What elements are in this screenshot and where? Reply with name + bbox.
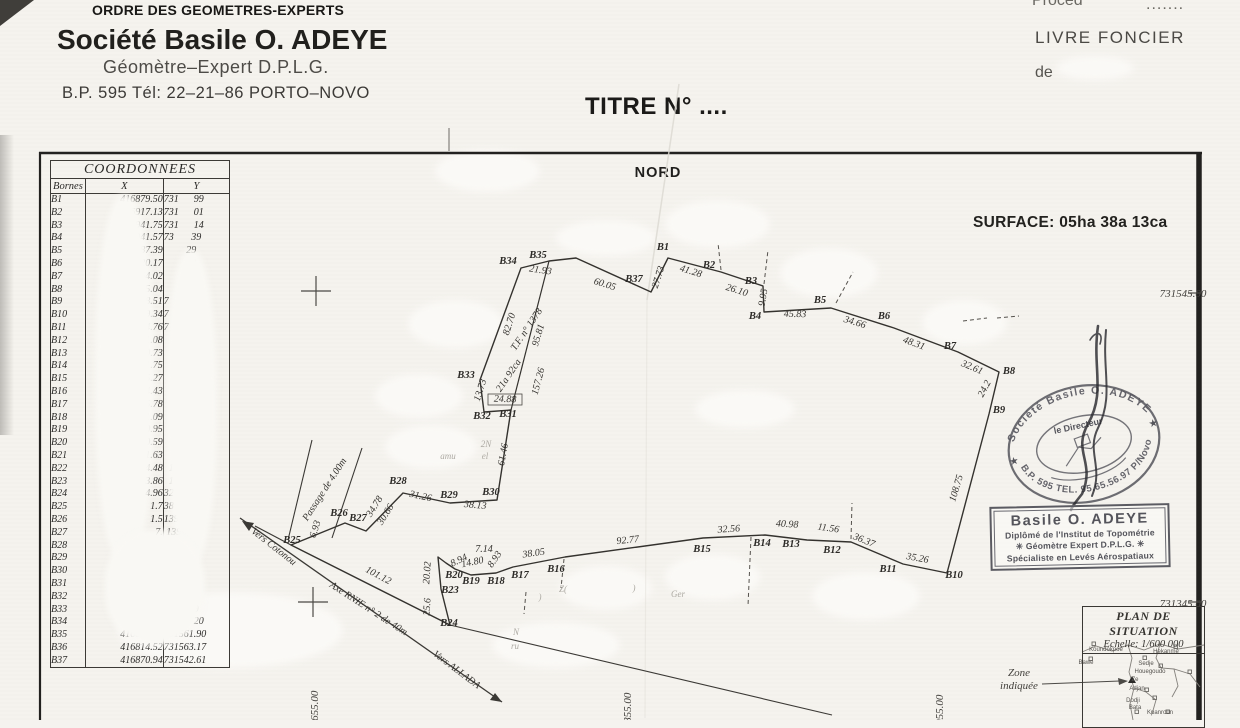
dimension-label: 108.75 <box>947 474 966 504</box>
vertex-label: B31 <box>498 409 517 420</box>
vertex-label: B16 <box>546 564 565 575</box>
vertex-label: B2 <box>702 260 716 271</box>
vertex-label: B34 <box>498 256 517 267</box>
dimension-label: 13.73 <box>472 378 489 403</box>
dimension-label: 157.26 <box>530 367 548 396</box>
vertex-label: B4 <box>748 311 761 322</box>
vertex-label: B11 <box>879 564 897 575</box>
plan-frame-border <box>39 152 1202 720</box>
vertex-label: B32 <box>472 411 491 422</box>
scan-artifact-edge <box>0 135 14 435</box>
vertex-label: B35 <box>528 250 547 261</box>
dimension-label: 32.56 <box>716 523 740 536</box>
vertex-label: B37 <box>624 274 643 285</box>
dimension-label: 25.6 <box>421 598 433 616</box>
dimension-label: 38.13 <box>463 499 487 512</box>
vertex-label: B18 <box>486 576 505 587</box>
dimension-label: 21.93 <box>528 264 552 278</box>
vertex-labels: B1B2B3B4B5B6B7B8B9B10B11B12B13B14B15B16B… <box>282 242 1016 629</box>
dimension-label: 20.02 <box>421 561 434 584</box>
vertex-label: B1 <box>656 242 669 253</box>
oval-stamp-star-left: ★ <box>1009 455 1020 467</box>
zone-label-line1: Zone <box>996 667 1042 680</box>
erased-fragment: el <box>482 451 489 461</box>
vertex-label: B6 <box>877 311 891 322</box>
dimension-label: 40.98 <box>776 518 799 530</box>
vertex-label: B20 <box>444 570 463 581</box>
vertex-label: B9 <box>992 405 1006 416</box>
vertex-label: B33 <box>456 370 475 381</box>
dimension-label: 32.61 <box>959 358 985 377</box>
dimension-label: 27.73 <box>650 265 667 290</box>
erased-fragment: ru <box>511 641 520 651</box>
vertex-label: B24 <box>439 618 458 629</box>
dimension-label: 24.2 <box>976 379 994 400</box>
dimension-label: 92.77 <box>616 534 641 547</box>
erased-fragment: Ger <box>671 589 685 599</box>
vertex-label: B19 <box>461 576 480 587</box>
erased-fragment: Z( <box>559 584 568 594</box>
situation-scale: Echelle: 1/600 000 <box>1083 639 1204 650</box>
paper-crease <box>645 84 679 718</box>
parcel-drawing: Société Basile O. ADEYE B.P. 595 TEL. 95… <box>0 0 1240 720</box>
dashed-boundary-lines <box>524 243 1019 614</box>
vertex-label: B8 <box>1002 366 1016 377</box>
grid-label: 731545.00 <box>1160 288 1207 300</box>
vertex-label: B14 <box>752 538 771 549</box>
vertex-label: B30 <box>481 487 500 498</box>
vertex-label: B28 <box>388 476 407 487</box>
grid-label: 416655.00 <box>309 690 321 720</box>
situation-box: PLAN DE SITUATION Echelle: 1/600 000 <box>1082 606 1205 728</box>
dimension-label: 24.88 <box>494 394 517 406</box>
road-label-vers-cotonou: Vers Cotonou <box>249 526 298 568</box>
vertex-label: B3 <box>744 276 757 287</box>
dimension-label: 7.14 <box>475 544 493 555</box>
dimension-labels: 21.9360.0527.7341.2826.109.9545.8334.664… <box>249 263 994 692</box>
dimension-label: 35.26 <box>904 551 929 566</box>
vertex-label: B7 <box>943 341 957 352</box>
dimension-label: 34.66 <box>841 314 867 331</box>
dimension-label: 61.46 <box>496 443 511 467</box>
erased-fragment: 2N <box>481 439 493 449</box>
zone-indicated-label: Zone indiquée <box>996 667 1042 693</box>
vertex-label: B26 <box>329 508 348 519</box>
dimension-label: 60.05 <box>592 276 617 293</box>
road-label-vers-allada: Vers ALLADA <box>431 649 483 692</box>
erased-fragment: N <box>512 627 520 637</box>
dimension-label: 48.31 <box>901 335 926 353</box>
rect-stamp-speciality: Spécialiste en Levés Aérospatiaux <box>996 550 1164 564</box>
dimension-label: 31.26 <box>407 489 432 505</box>
grid-label: 416855.00 <box>622 692 634 720</box>
situation-title: PLAN DE SITUATION <box>1083 609 1204 639</box>
rect-stamp: Basile O. ADEYE Diplômé de l'Institut de… <box>989 503 1170 571</box>
vertex-label: B29 <box>439 490 458 501</box>
erased-fragment: ) <box>538 592 542 602</box>
grid-label: 417055.00 <box>934 694 946 720</box>
vertex-label: B23 <box>440 585 459 596</box>
vertex-label: B15 <box>692 544 711 555</box>
vertex-label: B25 <box>282 535 301 546</box>
vertex-label: B5 <box>813 295 826 306</box>
vertex-label: B27 <box>348 513 367 524</box>
erased-fragment: amu <box>440 451 456 461</box>
road-label-axe-rnie: Axe RNIE n° 2 de 40m <box>327 579 410 638</box>
dimension-label: 45.83 <box>784 309 807 320</box>
vertex-label: B13 <box>781 539 800 550</box>
scanned-survey-document: ORDRE DES GEOMETRES-EXPERTS Société Basi… <box>0 0 1240 720</box>
oval-stamp: Société Basile O. ADEYE B.P. 595 TEL. 95… <box>997 371 1171 516</box>
zone-label-line2: indiquée <box>996 680 1042 693</box>
vertex-label: B10 <box>944 570 963 581</box>
dimension-label: 38.05 <box>521 547 546 561</box>
vertex-label: B12 <box>822 545 841 556</box>
erased-fragment: ) <box>632 583 636 593</box>
dimension-label: 9.95 <box>757 288 771 307</box>
vertex-label: B17 <box>510 570 529 581</box>
dimension-label: 11.56 <box>817 522 840 536</box>
